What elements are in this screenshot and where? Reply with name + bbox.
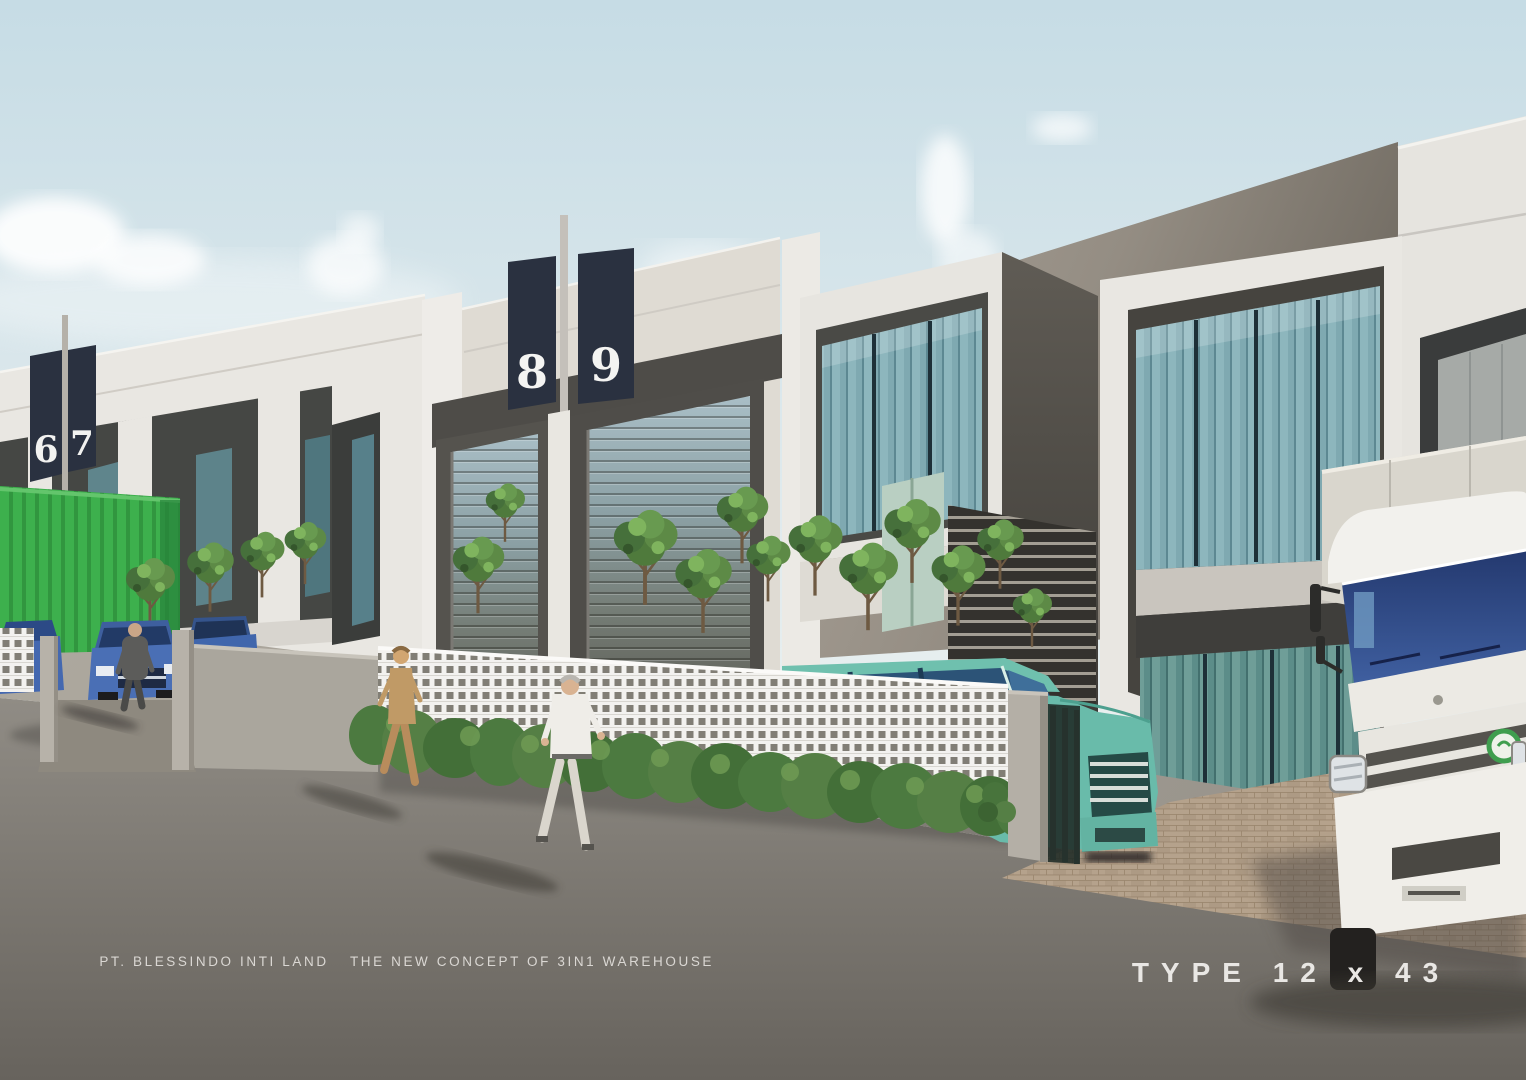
sign-post-67 [62,315,68,505]
company-label: PT. BLESSINDO INTI LAND [99,954,328,969]
tagline-label: THE NEW CONCEPT OF 3IN1 WAREHOUSE [350,954,714,969]
low-wall [194,646,378,772]
lattice-fence-left [0,628,34,692]
warehouse-rendering: 6 7 8 9 [0,0,1526,1080]
unit-number-9: 9 [590,338,622,392]
unit-number-7: 7 [70,424,94,464]
mpv-grille [1088,752,1152,818]
scene-canvas: 6 7 8 9 [0,0,1526,1080]
unit-number-8: 8 [516,345,548,399]
unit-number-6: 6 [33,429,58,471]
type-label: TYPE 12 x 43 [1132,957,1450,988]
